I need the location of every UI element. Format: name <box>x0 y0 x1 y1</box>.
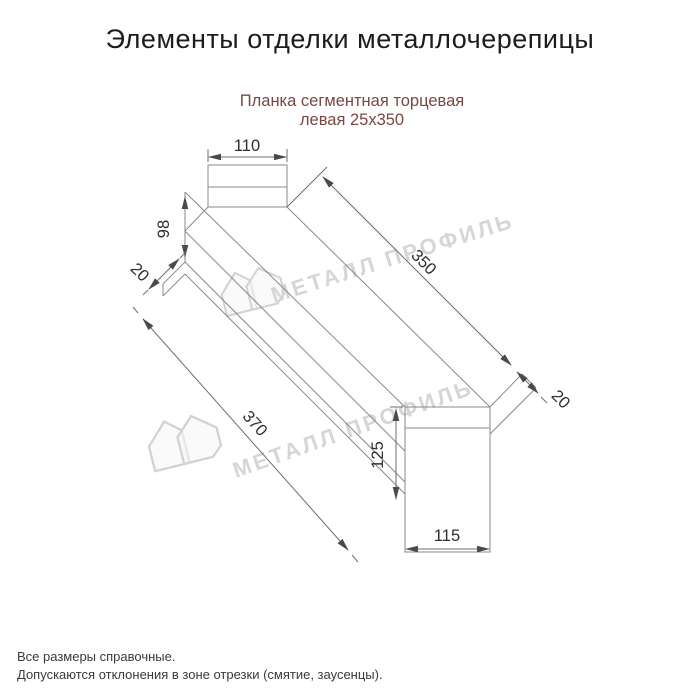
dim-label-98: 98 <box>155 220 173 238</box>
right-lip-end-edge <box>522 374 536 388</box>
watermark-top: МЕТАЛЛ ПРОФИЛЬ <box>217 208 517 316</box>
right-lip-inner-edge <box>490 388 536 434</box>
spec-sheet-page: Элементы отделки металлочерепицы Планка … <box>0 0 700 700</box>
footnotes: Все размеры справочные. Допускаются откл… <box>17 648 383 683</box>
top-section-rect <box>208 165 287 207</box>
dimension-left-height: 98 <box>155 197 185 257</box>
watermark-text: МЕТАЛЛ ПРОФИЛЬ <box>268 208 517 308</box>
dim-label-20-right: 20 <box>548 387 574 413</box>
dim-label-20-left: 20 <box>127 260 153 286</box>
right-lip-outer-edge <box>490 374 522 407</box>
footnote-line2: Допускаются отклонения в зоне отрезки (с… <box>17 666 383 684</box>
dim-label-115: 115 <box>434 527 460 545</box>
technical-drawing: МЕТАЛЛ ПРОФИЛЬ МЕТАЛЛ ПРОФИЛЬ <box>0 0 700 700</box>
dimension-left-lip: 20 <box>127 252 186 295</box>
watermark-bottom: МЕТАЛЛ ПРОФИЛЬ <box>144 375 476 483</box>
dimension-top-width: 110 <box>208 137 287 162</box>
dim-label-370: 370 <box>239 407 271 440</box>
dimension-bottom-width: 115 <box>406 527 489 549</box>
footnote-line1: Все размеры справочные. <box>17 648 383 666</box>
dim-label-110: 110 <box>234 137 260 155</box>
strip-upper-fold-edge <box>185 192 405 407</box>
left-lip-inner-edge <box>163 274 185 296</box>
dim-label-125: 125 <box>369 441 387 469</box>
left-lip-outer-edge <box>163 262 185 284</box>
metall-profil-logo-icon <box>144 410 223 472</box>
